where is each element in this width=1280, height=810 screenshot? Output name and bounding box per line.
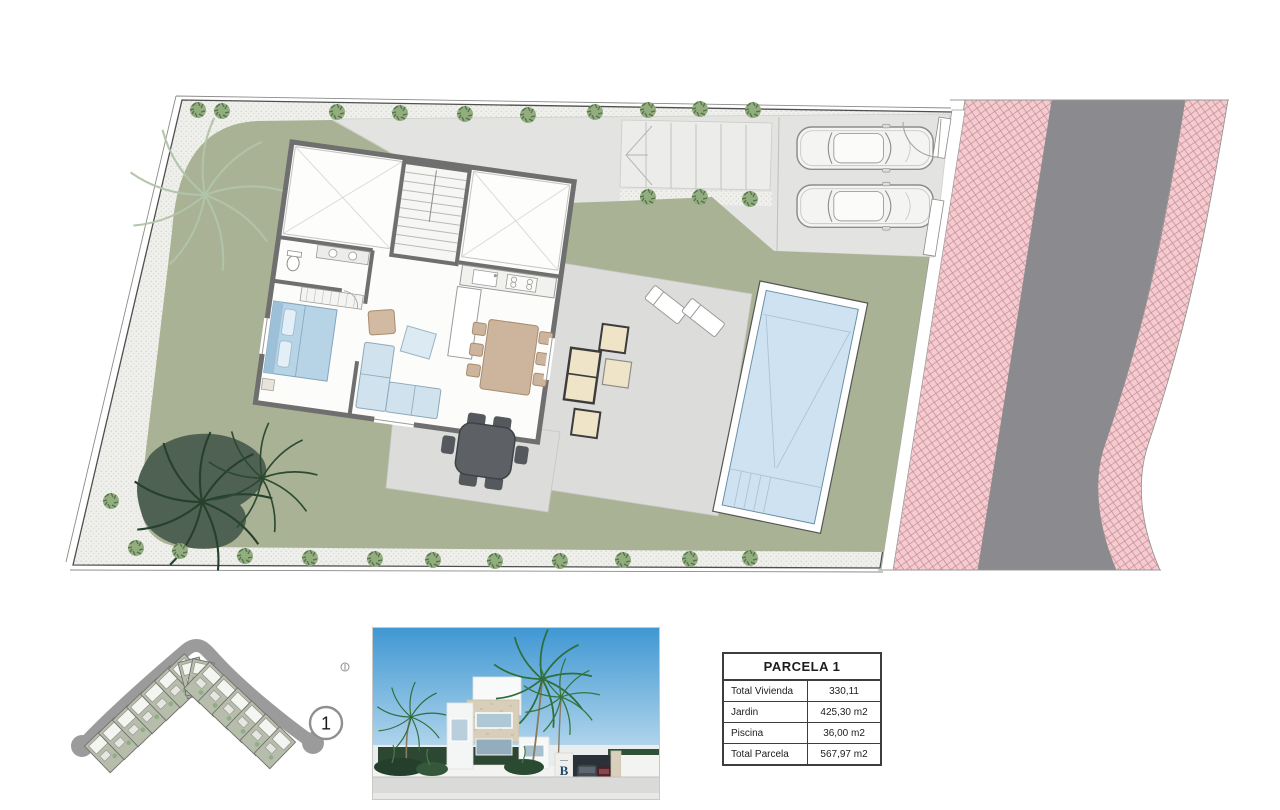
- row-label: Total Vivienda: [724, 681, 807, 701]
- armchair: [368, 309, 396, 335]
- nightstand: [261, 378, 274, 391]
- table-row: Total Vivienda 330,11: [724, 681, 880, 701]
- car-icon: [797, 124, 933, 172]
- parcel-info-table: PARCELA 1 Total Vivienda 330,11 Jardin 4…: [722, 652, 882, 766]
- row-value: 425,30 m2: [807, 702, 880, 722]
- entry-steps: [620, 120, 772, 190]
- row-value: 567,97 m2: [807, 744, 880, 764]
- table-row: Total Parcela 567,97 m2: [724, 743, 880, 764]
- villa-render-photo: B: [372, 627, 660, 800]
- mini-master-plan: 1: [71, 646, 349, 773]
- outdoor-table: [454, 421, 517, 480]
- site-plan-drawing: 1: [0, 0, 1280, 810]
- table-row: Jardin 425,30 m2: [724, 701, 880, 722]
- car-icon: [797, 182, 933, 230]
- table-row: Piscina 36,00 m2: [724, 722, 880, 743]
- house-floorplan: [252, 142, 577, 446]
- window: [476, 739, 512, 755]
- dining-table: [480, 319, 539, 395]
- row-value: 36,00 m2: [807, 723, 880, 743]
- row-label: Jardin: [724, 702, 807, 722]
- row-value: 330,11: [807, 681, 880, 701]
- staircase: [391, 162, 469, 264]
- row-label: Total Parcela: [724, 744, 807, 764]
- sink: [472, 270, 498, 287]
- plot-number-badge: 1: [310, 707, 342, 739]
- row-label: Piscina: [724, 723, 807, 743]
- window: [476, 713, 512, 728]
- table-title: PARCELA 1: [724, 654, 880, 681]
- plot-number-label: 1: [321, 714, 331, 734]
- window: [451, 719, 468, 741]
- gate-logo: B: [560, 763, 569, 778]
- plan-sheet: 1: [0, 0, 1280, 810]
